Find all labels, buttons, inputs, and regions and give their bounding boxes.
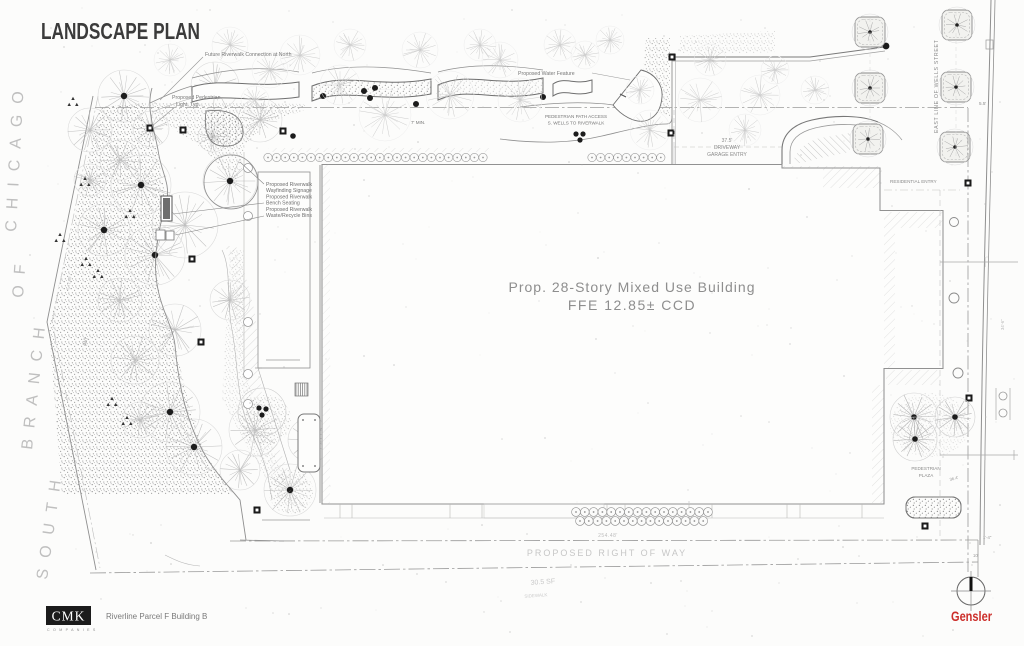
svg-text:Riverline Parcel F Building B: Riverline Parcel F Building B — [106, 612, 207, 621]
svg-text:DRIVEWAY: DRIVEWAY — [714, 145, 741, 151]
svg-text:PEDESTRIAN: PEDESTRIAN — [911, 466, 940, 471]
svg-text:Bench Seating: Bench Seating — [266, 201, 300, 207]
svg-text:PLAZA: PLAZA — [919, 473, 934, 478]
svg-text:Proposed Riverwalk: Proposed Riverwalk — [266, 182, 313, 188]
svg-text:5.5': 5.5' — [979, 101, 986, 106]
svg-text:PROPOSED RIGHT OF WAY: PROPOSED RIGHT OF WAY — [527, 548, 687, 558]
svg-text:Proposed Water Feature: Proposed Water Feature — [518, 71, 575, 77]
svg-text:GARAGE ENTRY: GARAGE ENTRY — [707, 152, 747, 158]
svg-text:C O M P A N I E S: C O M P A N I E S — [47, 628, 97, 632]
svg-text:1'-4": 1'-4" — [983, 535, 992, 540]
svg-text:PEDESTRIAN PATH ACCESS: PEDESTRIAN PATH ACCESS — [545, 114, 607, 119]
svg-text:Gensler: Gensler — [951, 608, 992, 624]
svg-text:254.48': 254.48' — [598, 533, 618, 539]
svg-text:Proposed Riverwalk: Proposed Riverwalk — [266, 194, 313, 200]
svg-text:RESIDENTIAL ENTRY: RESIDENTIAL ENTRY — [890, 179, 937, 184]
svg-text:OF: OF — [10, 253, 30, 298]
svg-text:Proposed Pedestrian: Proposed Pedestrian — [172, 95, 221, 101]
svg-text:EAST LINE OF WELLS STREET: EAST LINE OF WELLS STREET — [934, 39, 940, 133]
svg-text:Proposed Riverwalk: Proposed Riverwalk — [266, 207, 313, 213]
svg-text:Future Riverwalk Connection at: Future Riverwalk Connection at North — [205, 52, 292, 58]
svg-text:LANDSCAPE PLAN: LANDSCAPE PLAN — [41, 18, 200, 44]
svg-text:Light, Typ.: Light, Typ. — [176, 102, 200, 108]
svg-text:Wayfinding Signage: Wayfinding Signage — [266, 188, 312, 194]
svg-text:10': 10' — [973, 553, 979, 558]
svg-text:CMK: CMK — [52, 609, 86, 624]
svg-text:S. WELLS TO RIVERWALK: S. WELLS TO RIVERWALK — [548, 121, 606, 126]
svg-text:FFE 12.85± CCD: FFE 12.85± CCD — [568, 297, 696, 313]
svg-text:34'-6": 34'-6" — [1000, 319, 1005, 330]
svg-text:Prop. 28-Story Mixed Use Build: Prop. 28-Story Mixed Use Building — [509, 279, 756, 295]
svg-text:Waste/Recycle Bins: Waste/Recycle Bins — [266, 213, 312, 219]
svg-text:37.5': 37.5' — [722, 138, 733, 144]
svg-text:7' MIN.: 7' MIN. — [411, 120, 425, 125]
